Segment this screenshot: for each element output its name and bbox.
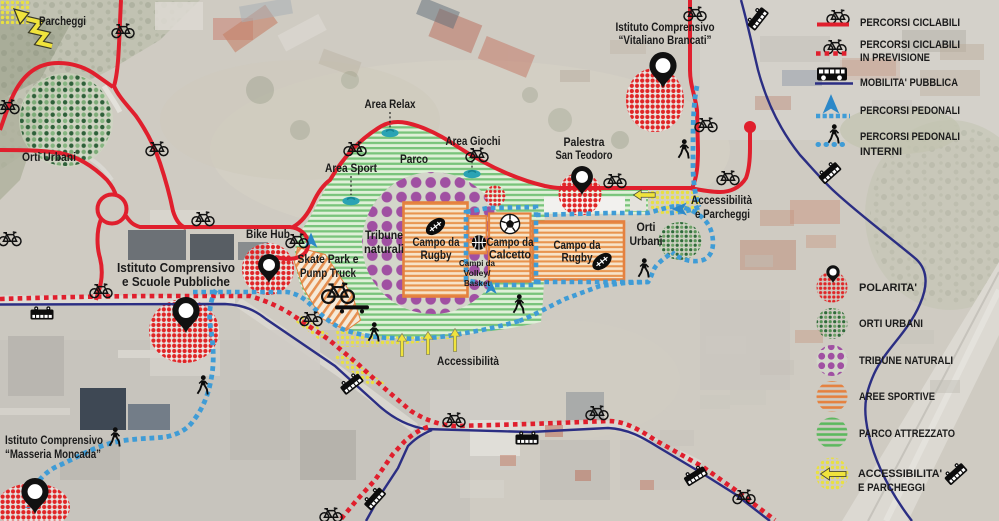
svg-text:Orti: Orti — [637, 222, 656, 234]
svg-text:Orti Urbani: Orti Urbani — [22, 152, 76, 164]
svg-text:Rugby: Rugby — [421, 250, 453, 262]
svg-text:Parcheggi: Parcheggi — [39, 16, 86, 28]
svg-text:Campi da: Campi da — [459, 258, 495, 268]
svg-text:Rugby: Rugby — [562, 253, 594, 265]
svg-text:Istituto Comprensivo: Istituto Comprensivo — [5, 433, 103, 447]
svg-text:Pump Truck: Pump Truck — [300, 268, 357, 280]
svg-text:Urbani: Urbani — [630, 236, 663, 248]
svg-text:“Vitaliano Brancati”: “Vitaliano Brancati” — [619, 35, 712, 47]
svg-text:Accessibilità: Accessibilità — [437, 356, 500, 368]
svg-text:Bike Hub: Bike Hub — [246, 229, 290, 241]
svg-text:PERCORSI CICLABILI: PERCORSI CICLABILI — [860, 39, 960, 51]
svg-text:E PARCHEGGI: E PARCHEGGI — [858, 482, 925, 494]
svg-text:e Scuole Pubbliche: e Scuole Pubbliche — [122, 275, 230, 289]
svg-text:INTERNI: INTERNI — [860, 146, 902, 158]
svg-text:naturali: naturali — [364, 244, 404, 256]
svg-text:Parco: Parco — [400, 154, 428, 166]
svg-text:Area Sport: Area Sport — [325, 163, 377, 175]
svg-text:Calcetto: Calcetto — [489, 250, 531, 262]
svg-text:MOBILITA' PUBBLICA: MOBILITA' PUBBLICA — [860, 77, 958, 89]
svg-text:“Masseria Moncada”: “Masseria Moncada” — [5, 447, 101, 461]
svg-text:Campo da: Campo da — [487, 237, 535, 249]
svg-text:Area Relax: Area Relax — [365, 99, 417, 111]
svg-text:San Teodoro: San Teodoro — [556, 150, 613, 162]
svg-text:Tribune: Tribune — [365, 230, 403, 242]
svg-text:Area Giochi: Area Giochi — [446, 136, 501, 148]
svg-text:Istituto Comprensivo: Istituto Comprensivo — [117, 261, 235, 275]
svg-text:e Parcheggi: e Parcheggi — [695, 209, 750, 221]
svg-text:Campo da: Campo da — [554, 240, 602, 252]
svg-text:PERCORSI PEDONALI: PERCORSI PEDONALI — [860, 131, 960, 143]
svg-text:PARCO ATTREZZATO: PARCO ATTREZZATO — [859, 428, 955, 440]
svg-text:ORTI URBANI: ORTI URBANI — [859, 318, 923, 330]
svg-text:Volley/: Volley/ — [464, 268, 492, 278]
svg-text:Accessibilità: Accessibilità — [691, 195, 753, 207]
svg-text:PERCORSI PEDONALI: PERCORSI PEDONALI — [860, 105, 960, 117]
svg-text:ACCESSIBILITA': ACCESSIBILITA' — [858, 468, 942, 480]
svg-text:POLARITA': POLARITA' — [859, 282, 917, 294]
svg-text:AREE SPORTIVE: AREE SPORTIVE — [859, 391, 935, 403]
svg-text:IN PREVISIONE: IN PREVISIONE — [860, 52, 930, 64]
svg-text:Campo da: Campo da — [413, 237, 461, 249]
svg-text:Skate Park e: Skate Park e — [298, 254, 359, 266]
svg-text:TRIBUNE NATURALI: TRIBUNE NATURALI — [859, 355, 953, 367]
svg-text:Istituto Comprensivo: Istituto Comprensivo — [616, 22, 715, 34]
svg-text:Palestra: Palestra — [564, 137, 606, 149]
svg-text:Basket: Basket — [464, 278, 490, 288]
svg-text:PERCORSI CICLABILI: PERCORSI CICLABILI — [860, 17, 960, 29]
